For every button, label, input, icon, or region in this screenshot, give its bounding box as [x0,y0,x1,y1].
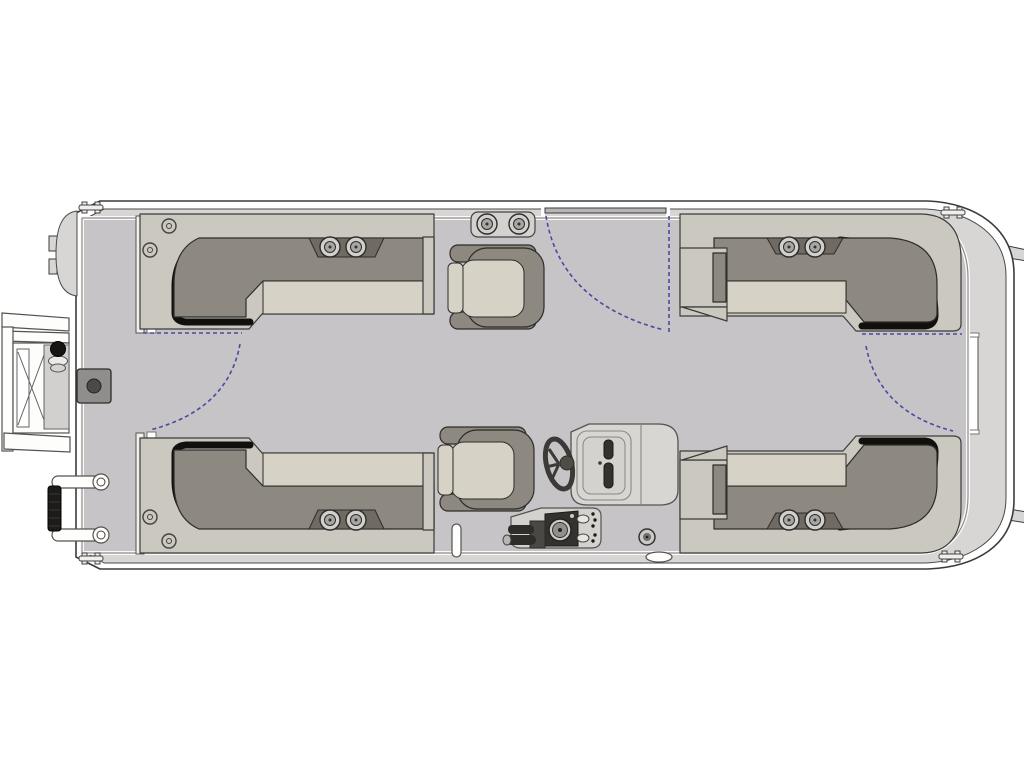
ski-tow-base [646,552,672,562]
captain-chair-port [448,245,544,329]
lounge-cushion [714,281,846,313]
lounge-cushion [263,281,434,314]
lounge-arm-pad [713,465,726,514]
pontoon-floorplan-diagram [0,0,1024,768]
bow-hatch [77,369,111,403]
lounge-arm-pad [713,253,726,302]
lounge-arm [423,237,434,314]
deck-latch [639,529,655,545]
captain-chair-starboard [438,427,534,511]
lounge-stern-port [680,214,961,331]
chair-cup-holder-plate [471,212,535,237]
bow-nose [49,211,77,296]
lounge-cushion [714,454,846,486]
chair-seat [461,260,524,317]
chair-seat-front [448,263,463,313]
lounge-bow-port [140,214,434,329]
pontoon-floorplan-page [0,0,1024,768]
bow-boarding-ladder [2,313,70,452]
dash-knob [598,461,602,465]
chair-seat [451,442,514,499]
lounge-bow-starboard [140,438,434,553]
ski-pole [452,524,461,557]
dash-screen-bottom [604,463,613,488]
lounge-cushion [263,453,434,486]
dash-screen-top [604,440,613,459]
chair-seat-front [438,445,453,495]
lounge-arm [423,453,434,530]
lounge-stern-starboard [680,436,961,553]
